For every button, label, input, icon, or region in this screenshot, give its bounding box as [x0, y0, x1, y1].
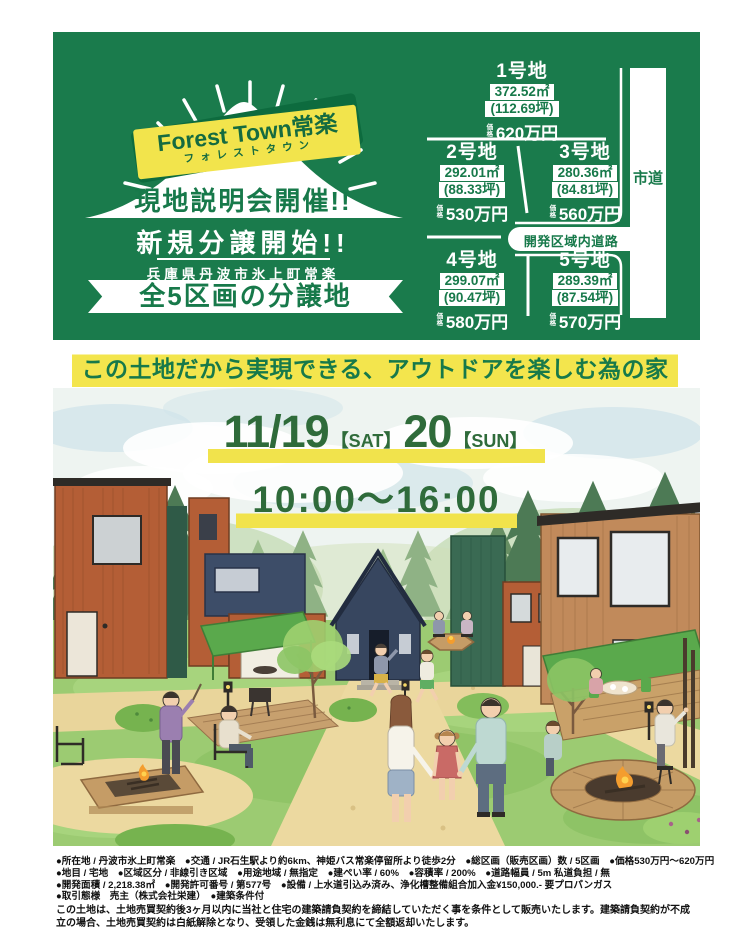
lot-name: 5号地	[533, 250, 637, 271]
lot-area-tsubo: (90.47坪)	[439, 290, 505, 306]
lot-area: 292.01㎡	[440, 165, 505, 181]
lot-area: 299.07㎡	[440, 273, 505, 289]
lot-name: 3号地	[533, 142, 637, 163]
lot-price: 530万円	[446, 200, 508, 225]
divider	[157, 258, 330, 260]
hedge	[167, 506, 187, 678]
lot-5: 5号地 289.39㎡ (87.54坪) 価格570万円	[533, 250, 637, 333]
lot-name: 1号地	[470, 61, 574, 82]
date-2: 20	[403, 406, 451, 457]
price-label: 価格	[549, 205, 557, 219]
price-label: 価格	[486, 124, 494, 138]
event-date-banner: 11/19【SAT】20【SUN】 10:00〜16:00	[53, 406, 700, 530]
lots-banner: 全5区画の分譲地	[88, 280, 403, 313]
sales-condition-notice: この土地は、土地売買契約後3ヶ月以内に当社と住宅の建築請負契約を締結していただく…	[56, 905, 698, 930]
date-line: 11/19【SAT】20【SUN】	[208, 406, 546, 465]
legal-line: ●取引態様 売主（株式会社栄建） ●建築条件付	[56, 891, 698, 903]
inner-road-label: 開発区域内道路	[508, 231, 634, 250]
lot-area: 372.52㎡	[490, 84, 555, 100]
house-tan-right	[537, 502, 700, 740]
person-sitting-center-1	[433, 612, 445, 638]
lot-area-tsubo: (88.33坪)	[439, 182, 505, 198]
day-2: 【SUN】	[451, 431, 529, 451]
event-title: 現地説明会開催!!	[68, 181, 418, 218]
lot-name: 2号地	[420, 142, 524, 163]
lot-name: 4号地	[420, 250, 524, 271]
lot-price: 560万円	[559, 200, 621, 225]
sale-start-title: 新規分譲開始!!	[68, 223, 418, 260]
fire-pit-round	[551, 760, 695, 820]
day-1: 【SAT】	[329, 431, 404, 451]
lot-3: 3号地 280.36㎡ (84.81坪) 価格560万円	[533, 142, 637, 225]
catchcopy-text: この土地だから実現できる、アウトドアを楽しむ為の家	[72, 349, 677, 387]
lot-price: 570万円	[559, 308, 621, 333]
lot-area: 280.36㎡	[553, 165, 618, 181]
lot-4: 4号地 299.07㎡ (90.47坪) 価格580万円	[420, 250, 524, 333]
lot-1: 1号地 372.52㎡ (112.69坪) 価格620万円	[470, 61, 574, 144]
lot-area-tsubo: (84.81坪)	[552, 182, 618, 198]
lot-2: 2号地 292.01㎡ (88.33坪) 価格530万円	[420, 142, 524, 225]
lot-price: 580万円	[446, 308, 508, 333]
lot-area: 289.39㎡	[553, 273, 618, 289]
lot-area-tsubo: (87.54坪)	[552, 290, 618, 306]
lot-price: 620万円	[496, 119, 558, 144]
flyer: Forest Town常楽 フォレストタウン 現地説明会開催!! 新規分譲開始!…	[0, 0, 750, 935]
price-label: 価格	[549, 313, 557, 327]
price-label: 価格	[436, 205, 444, 219]
city-road-label: 市道	[630, 167, 666, 188]
price-label: 価格	[436, 313, 444, 327]
legal-line: ●地目 / 宅地 ●区域区分 / 非線引き区域 ●用途地域 / 無指定 ●建ぺい…	[56, 868, 698, 880]
legal-footer: ●所在地 / 丹波市氷上町常楽 ●交通 / JR石生駅より約6km、神姫バス常楽…	[56, 856, 698, 930]
lot-area-tsubo: (112.69坪)	[485, 101, 558, 117]
catchcopy: この土地だから実現できる、アウトドアを楽しむ為の家	[0, 349, 750, 387]
legal-line: ●所在地 / 丹波市氷上町常楽 ●交通 / JR石生駅より約6km、神姫バス常楽…	[56, 856, 698, 868]
header-panel: Forest Town常楽 フォレストタウン 現地説明会開催!! 新規分譲開始!…	[53, 32, 700, 340]
event-time: 10:00〜16:00	[236, 469, 516, 530]
date-1: 11/19	[224, 406, 329, 457]
legal-line: ●開発面積 / 2,218.38㎡ ●開発許可番号 / 第577号 ●設備 / …	[56, 880, 698, 892]
person-sitting-center-2	[461, 612, 473, 638]
